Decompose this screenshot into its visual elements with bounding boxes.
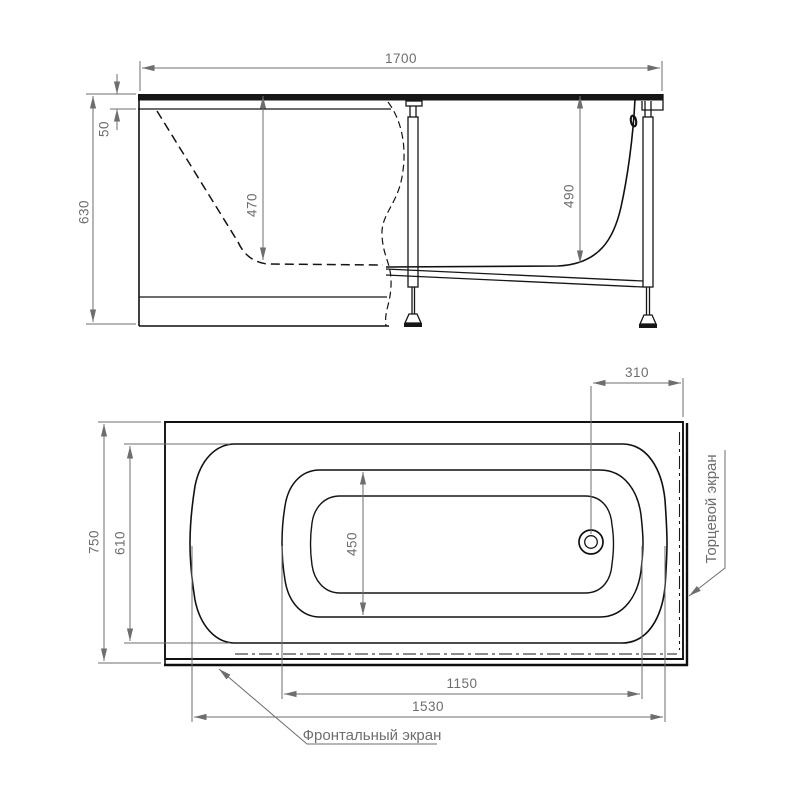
dim-50-text: 50 <box>96 121 111 137</box>
dim-490: 490 <box>561 96 580 263</box>
dim-470-text: 470 <box>244 193 259 217</box>
frame-leg-left <box>404 101 422 327</box>
dim-310-text: 310 <box>625 365 649 380</box>
frame-crossbar <box>386 269 643 287</box>
tub-bottom-profile <box>386 99 635 267</box>
dim-1700: 1700 <box>140 51 662 91</box>
dim-50: 50 <box>96 74 136 137</box>
front-screen-label: Фронтальный экран <box>303 727 442 744</box>
dim-1700-text: 1700 <box>385 51 417 66</box>
dim-450-text: 450 <box>344 532 359 556</box>
dim-750-text: 750 <box>86 530 101 554</box>
dim-630-text: 630 <box>76 200 91 224</box>
rim-bar <box>138 94 663 101</box>
dim-1150-text: 1150 <box>446 676 477 691</box>
dim-470: 470 <box>244 96 263 260</box>
dim-310: 310 <box>591 365 683 534</box>
dim-610: 610 <box>112 444 230 643</box>
bathtub-technical-drawing: 1700 50 630 470 490 <box>0 0 800 800</box>
front-panel-side <box>139 94 404 326</box>
drawing-svg: 1700 50 630 470 490 <box>0 0 800 800</box>
frame-leg-right <box>639 101 657 328</box>
front-screen-callout: Фронтальный экран <box>219 669 441 744</box>
dim-610-text: 610 <box>112 531 127 555</box>
tub-hidden-profile <box>157 111 383 265</box>
plan-outer-rect <box>165 422 683 659</box>
dim-490-text: 490 <box>561 184 576 208</box>
dim-1530: 1530 <box>192 546 665 722</box>
tub-inner-rim-edge <box>282 470 643 617</box>
dim-1530-text: 1530 <box>412 699 444 714</box>
panel-break-line <box>382 102 404 326</box>
side-view: 1700 50 630 470 490 <box>76 51 663 328</box>
dim-1150: 1150 <box>282 546 642 699</box>
plan-view: 310 750 610 450 1150 153 <box>86 365 725 744</box>
tub-outer-edge <box>190 444 667 643</box>
end-screen-callout: Торцевой экран <box>689 450 725 596</box>
end-screen-label: Торцевой экран <box>703 454 720 563</box>
